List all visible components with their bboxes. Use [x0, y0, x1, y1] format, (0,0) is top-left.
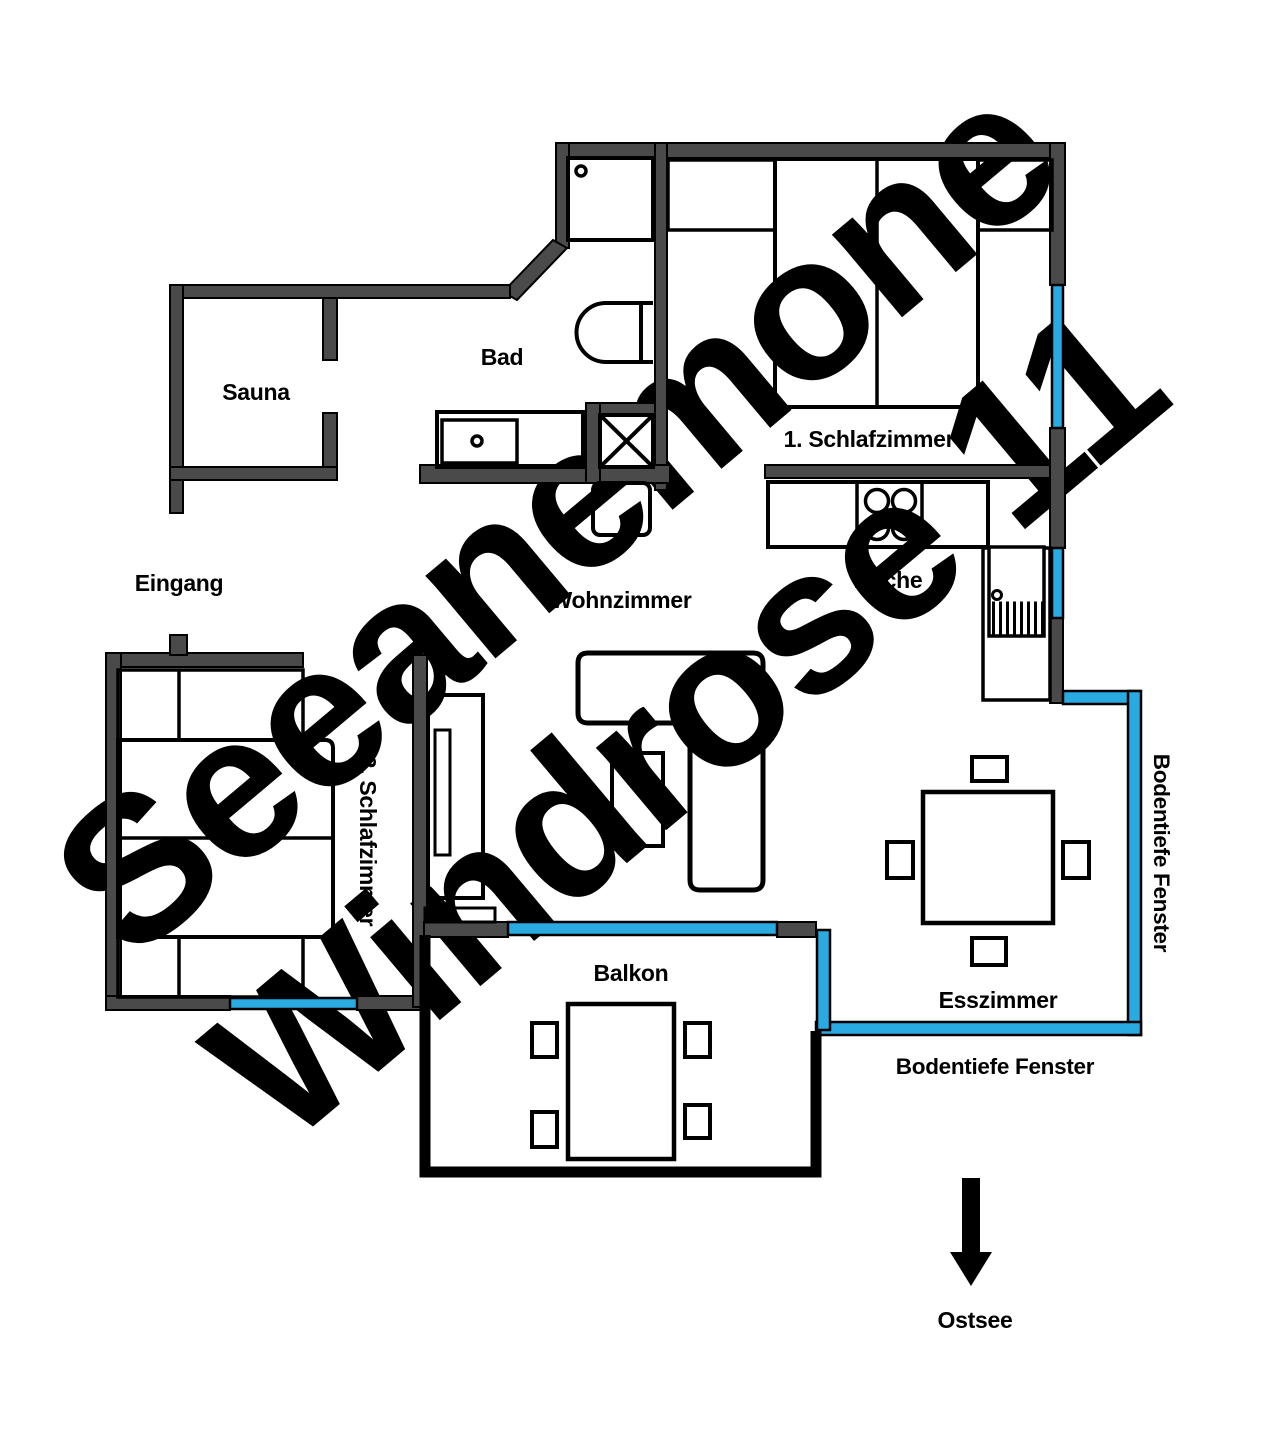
- compass-label-ostsee: Ostsee: [938, 1307, 1013, 1333]
- balcony-table: [568, 1004, 674, 1159]
- wall-right-lower: [1050, 618, 1063, 703]
- room-label-sauna: Sauna: [222, 379, 290, 405]
- window-schlafzimmer2: [230, 998, 357, 1009]
- arrow-head: [950, 1252, 992, 1286]
- wall-sauna-right-top: [323, 298, 337, 360]
- dining-table: [923, 792, 1053, 923]
- wall-sauna-bottom: [170, 467, 337, 480]
- room-label-schlafzimmer2: 2. Schlafzimmer: [355, 756, 381, 927]
- room-label-kueche: Küche: [854, 567, 923, 593]
- wall-right-middle: [1050, 428, 1065, 548]
- wall-balcony-left-block: [424, 922, 508, 937]
- wall-sauna-top: [170, 285, 510, 298]
- ostsee-arrow: [950, 1178, 992, 1286]
- shower: [568, 158, 653, 240]
- dining-chair: [972, 938, 1006, 965]
- window-label-right: Bodentiefe Fenster: [1149, 754, 1174, 953]
- window-schlafzimmer1: [1052, 285, 1063, 428]
- balcony-chair: [685, 1023, 710, 1057]
- floor-plan: Seeanemone Windrose 11: [0, 0, 1288, 1440]
- wall-diagonal: [503, 240, 567, 300]
- wall-top: [556, 143, 1065, 158]
- dining-chair: [887, 842, 913, 878]
- room-label-eingang: Eingang: [135, 570, 224, 596]
- wall-bedroom2-top: [106, 653, 303, 667]
- room-label-balkon: Balkon: [594, 960, 669, 986]
- window-balkon: [508, 922, 777, 935]
- arrow-shaft: [962, 1178, 980, 1254]
- window-balkon-door: [817, 930, 830, 1030]
- window-esszimmer-right: [1128, 691, 1141, 1035]
- room-label-bad: Bad: [481, 344, 524, 370]
- dining-chair: [1063, 842, 1089, 878]
- wall-bad-right: [655, 143, 667, 490]
- wall-shaft-left: [586, 403, 600, 483]
- balcony-chair: [685, 1105, 710, 1138]
- room-label-schlafzimmer1: 1. Schlafzimmer: [784, 426, 955, 452]
- wall-bedroom2-door-stub: [170, 635, 187, 655]
- balcony-chair: [532, 1023, 557, 1057]
- wall-sauna-right-bottom: [323, 413, 337, 467]
- shower-drain: [576, 166, 586, 176]
- room-label-esszimmer: Esszimmer: [939, 987, 1058, 1013]
- dining-chair: [972, 757, 1007, 781]
- window-label-bottom: Bodentiefe Fenster: [896, 1054, 1095, 1079]
- room-label-wohnzimmer: Wohnzimmer: [551, 587, 692, 613]
- balcony-chair: [532, 1112, 557, 1147]
- wall-kueche-top: [765, 465, 1063, 478]
- wall-balcony-right-block: [777, 922, 816, 937]
- window-esszimmer-bottom: [816, 1022, 1141, 1035]
- window-kueche: [1052, 548, 1063, 618]
- floor-plan-page: Seeanemone Windrose 11: [0, 0, 1288, 1440]
